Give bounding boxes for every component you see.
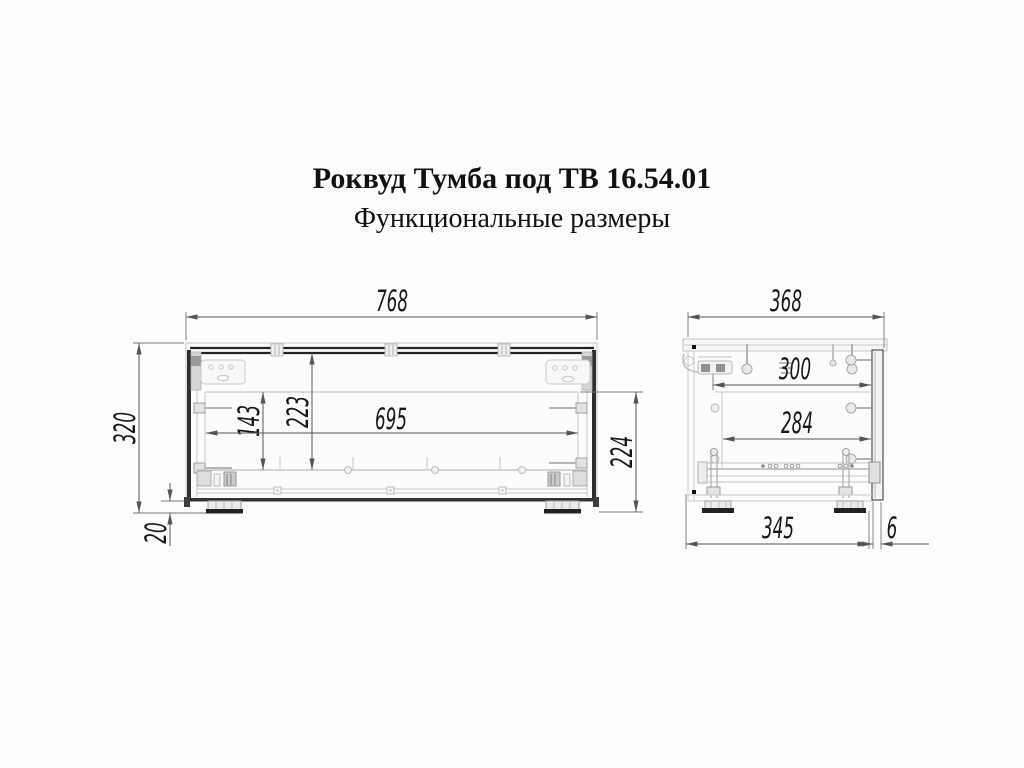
- dim-label-345: 345: [762, 511, 794, 545]
- rail-clip-icon: [271, 344, 283, 356]
- bottom-screw-icon: [499, 487, 506, 494]
- bottom-screw-icon: [274, 487, 281, 494]
- drawing-sheet: Роквуд Тумба под ТВ 16.54.01 Функциональ…: [0, 0, 1024, 768]
- dim-label-368: 368: [770, 284, 802, 318]
- bottom-edge: [186, 498, 597, 502]
- dim-label-6: 6: [887, 511, 898, 545]
- dim-label-300: 300: [779, 352, 811, 386]
- cam-lock-icon: [711, 455, 719, 463]
- cam-lock-icon: [711, 404, 719, 412]
- dim-label-320: 320: [108, 412, 142, 444]
- marker-dot: [692, 490, 696, 494]
- dim-label-143: 143: [232, 405, 266, 437]
- dimension-front-overall-width: 768: [186, 284, 597, 340]
- foot-icon: [206, 501, 243, 514]
- dimension-side-overall-depth: 368: [688, 284, 884, 348]
- dim-label-284: 284: [781, 406, 813, 440]
- dim-label-695: 695: [375, 402, 407, 436]
- technical-drawing: 768 320 20 143 223: [0, 0, 1024, 768]
- dim-label-223: 223: [281, 396, 315, 428]
- dimension-side-door-gap: 6: [860, 502, 929, 549]
- marker-dot: [692, 345, 696, 349]
- corner-hardware-pad: [191, 356, 201, 366]
- bottom-corner: [184, 497, 190, 507]
- dimension-front-plinth-height: 20: [139, 483, 184, 546]
- front-view-drawing: 768 320 20 143 223: [108, 284, 643, 546]
- rail-clip-icon: [385, 344, 397, 356]
- dim-label-768: 768: [376, 284, 408, 318]
- foot-icon: [544, 501, 581, 514]
- bracket-plate-icon: [201, 360, 245, 384]
- bracket-plate-icon: [546, 360, 590, 384]
- foot-icon: [834, 501, 866, 513]
- right-side-edge: [592, 350, 596, 500]
- dim-label-20: 20: [139, 522, 173, 543]
- bottom-corner: [593, 497, 599, 507]
- dim-label-224: 224: [605, 436, 639, 468]
- rail-clip-icon: [498, 344, 510, 356]
- left-side-edge: [187, 350, 191, 500]
- side-view-drawing: 368 300 284 345 6: [683, 284, 929, 549]
- foot-icon: [702, 501, 734, 513]
- bottom-screw-icon: [387, 487, 394, 494]
